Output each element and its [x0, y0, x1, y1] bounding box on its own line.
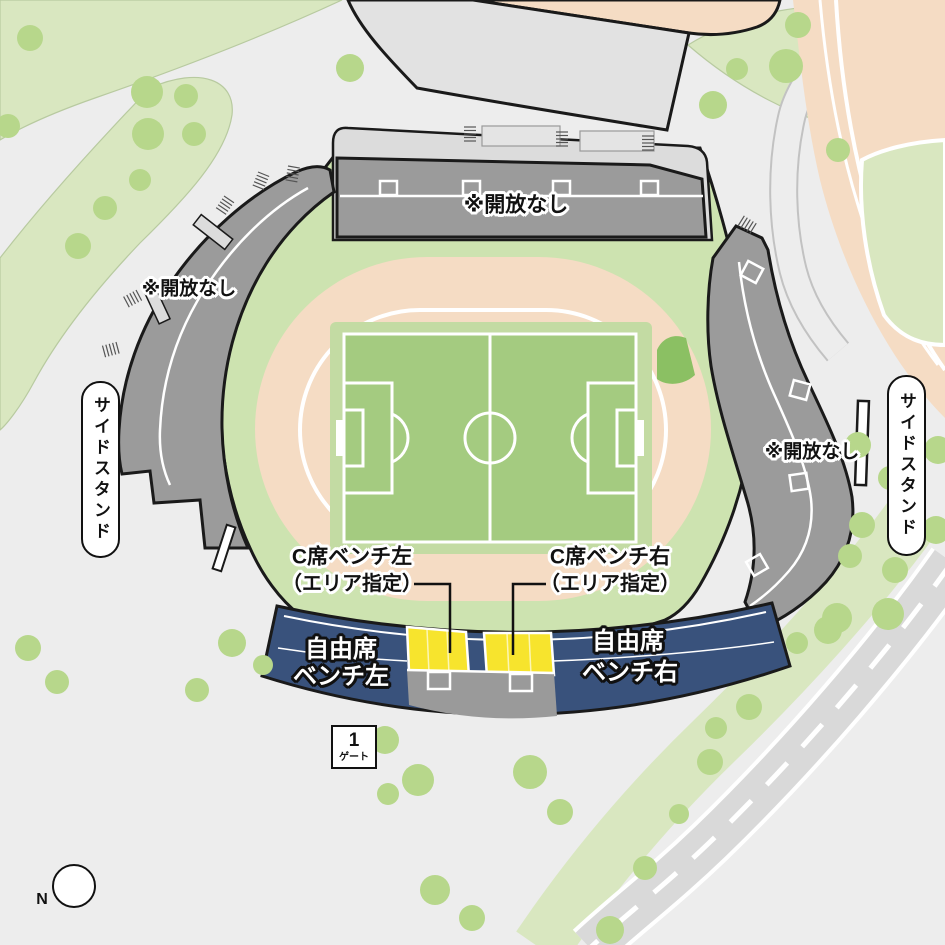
tree-icon [705, 717, 727, 739]
stadium-seat-map: ※開放なし ※開放なし ※開放なし サイドスタンド サイドスタンド C席ベンチ左… [0, 0, 945, 945]
tree-icon [849, 512, 875, 538]
tree-icon [93, 196, 117, 220]
tree-icon [336, 54, 364, 82]
tree-icon [253, 655, 273, 675]
tree-icon [633, 856, 657, 880]
compass-circle [52, 864, 96, 908]
gate-number: 1 [349, 731, 360, 750]
tree-icon [669, 804, 689, 824]
tree-icon [17, 25, 43, 51]
tree-icon [402, 764, 434, 796]
map-graphics [0, 0, 945, 945]
side-stand-left-pill: サイドスタンド [81, 381, 120, 558]
tree-icon [872, 598, 904, 630]
tree-icon [174, 84, 198, 108]
north-stand-closed-label: ※開放なし [464, 195, 568, 216]
tree-icon [131, 76, 163, 108]
c-seat-left-label-line2: （エリア指定） [282, 574, 422, 594]
tree-icon [420, 875, 450, 905]
tree-icon [459, 905, 485, 931]
c-seat-left-label-line1: C席ベンチ左 [292, 547, 412, 568]
side-stand-right-pill: サイドスタンド [887, 375, 926, 556]
tree-icon [786, 632, 808, 654]
tree-icon [547, 799, 573, 825]
tree-icon [697, 749, 723, 775]
tree-icon [182, 122, 206, 146]
tree-icon [596, 916, 624, 944]
west-stand-closed-label: ※開放なし [142, 280, 236, 299]
compass-n-label: N [36, 892, 48, 908]
tree-icon [45, 670, 69, 694]
tree-icon [882, 557, 908, 583]
tree-icon [838, 544, 862, 568]
tree-icon [65, 233, 91, 259]
c-seat-right-block[interactable] [484, 633, 554, 677]
tree-icon [785, 12, 811, 38]
tree-icon [132, 118, 164, 150]
tree-icon [822, 603, 852, 633]
tree-icon [15, 635, 41, 661]
east-stand-closed-label: ※開放なし [765, 443, 859, 462]
tree-icon [769, 49, 803, 83]
tree-icon [699, 91, 727, 119]
tree-icon [726, 58, 748, 80]
c-seat-right-label-line1: C席ベンチ右 [550, 547, 670, 568]
tree-icon [826, 138, 850, 162]
tree-icon [218, 629, 246, 657]
tree-icon [185, 678, 209, 702]
gate-1-marker[interactable]: 1 ゲート [331, 725, 377, 769]
main-stand-north [333, 126, 712, 240]
c-seat-right-label-line2: （エリア指定） [540, 574, 680, 594]
soccer-field [330, 322, 695, 554]
tree-icon [924, 436, 945, 464]
tree-icon [513, 755, 547, 789]
sub-track [793, 0, 945, 418]
free-seat-right-label-line2[interactable]: ベンチ右 [582, 661, 678, 685]
tree-icon [129, 169, 151, 191]
c-seat-left-block[interactable] [407, 627, 469, 676]
gate-label: ゲート [339, 753, 369, 763]
free-seat-left-label-line1[interactable]: 自由席 [305, 638, 377, 662]
free-seat-right-label-line1[interactable]: 自由席 [592, 630, 664, 654]
tree-icon [736, 694, 762, 720]
tree-icon [377, 783, 399, 805]
free-seat-left-label-line2[interactable]: ベンチ左 [293, 665, 389, 689]
